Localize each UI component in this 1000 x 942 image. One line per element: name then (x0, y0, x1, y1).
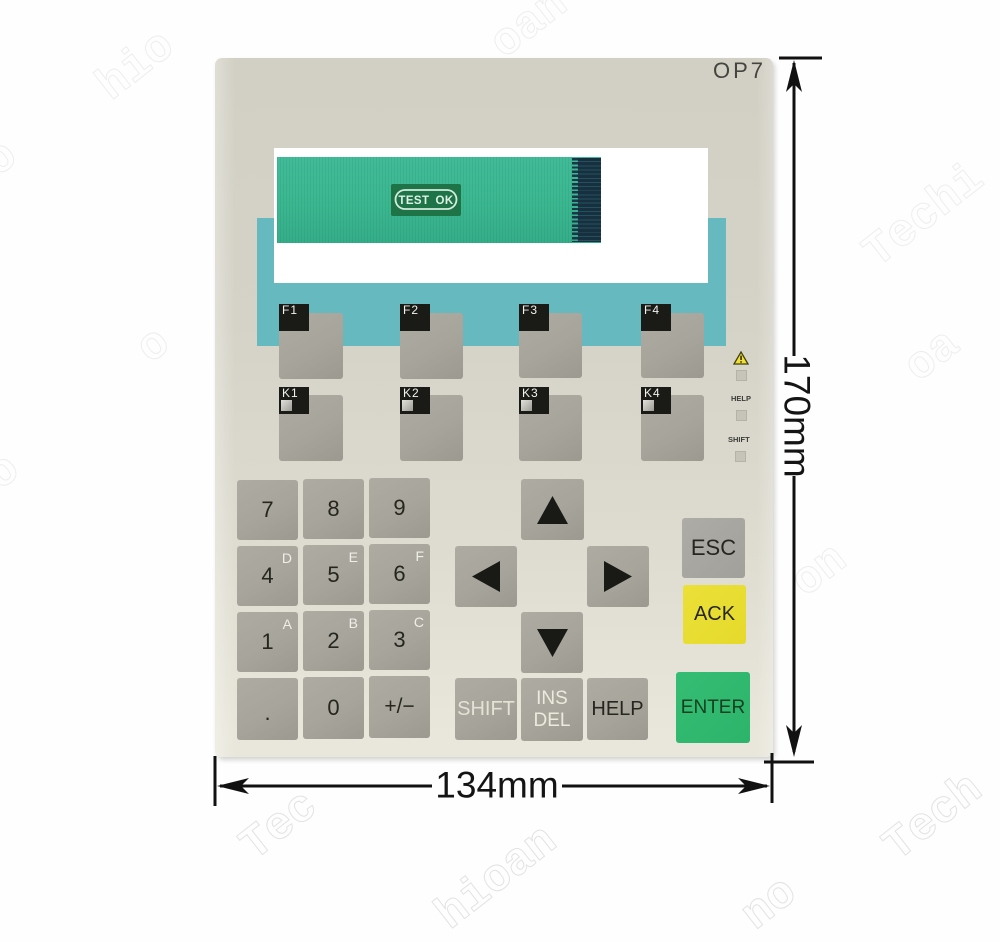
svg-text:134mm: 134mm (435, 765, 558, 806)
svg-text:170mm: 170mm (777, 354, 818, 477)
